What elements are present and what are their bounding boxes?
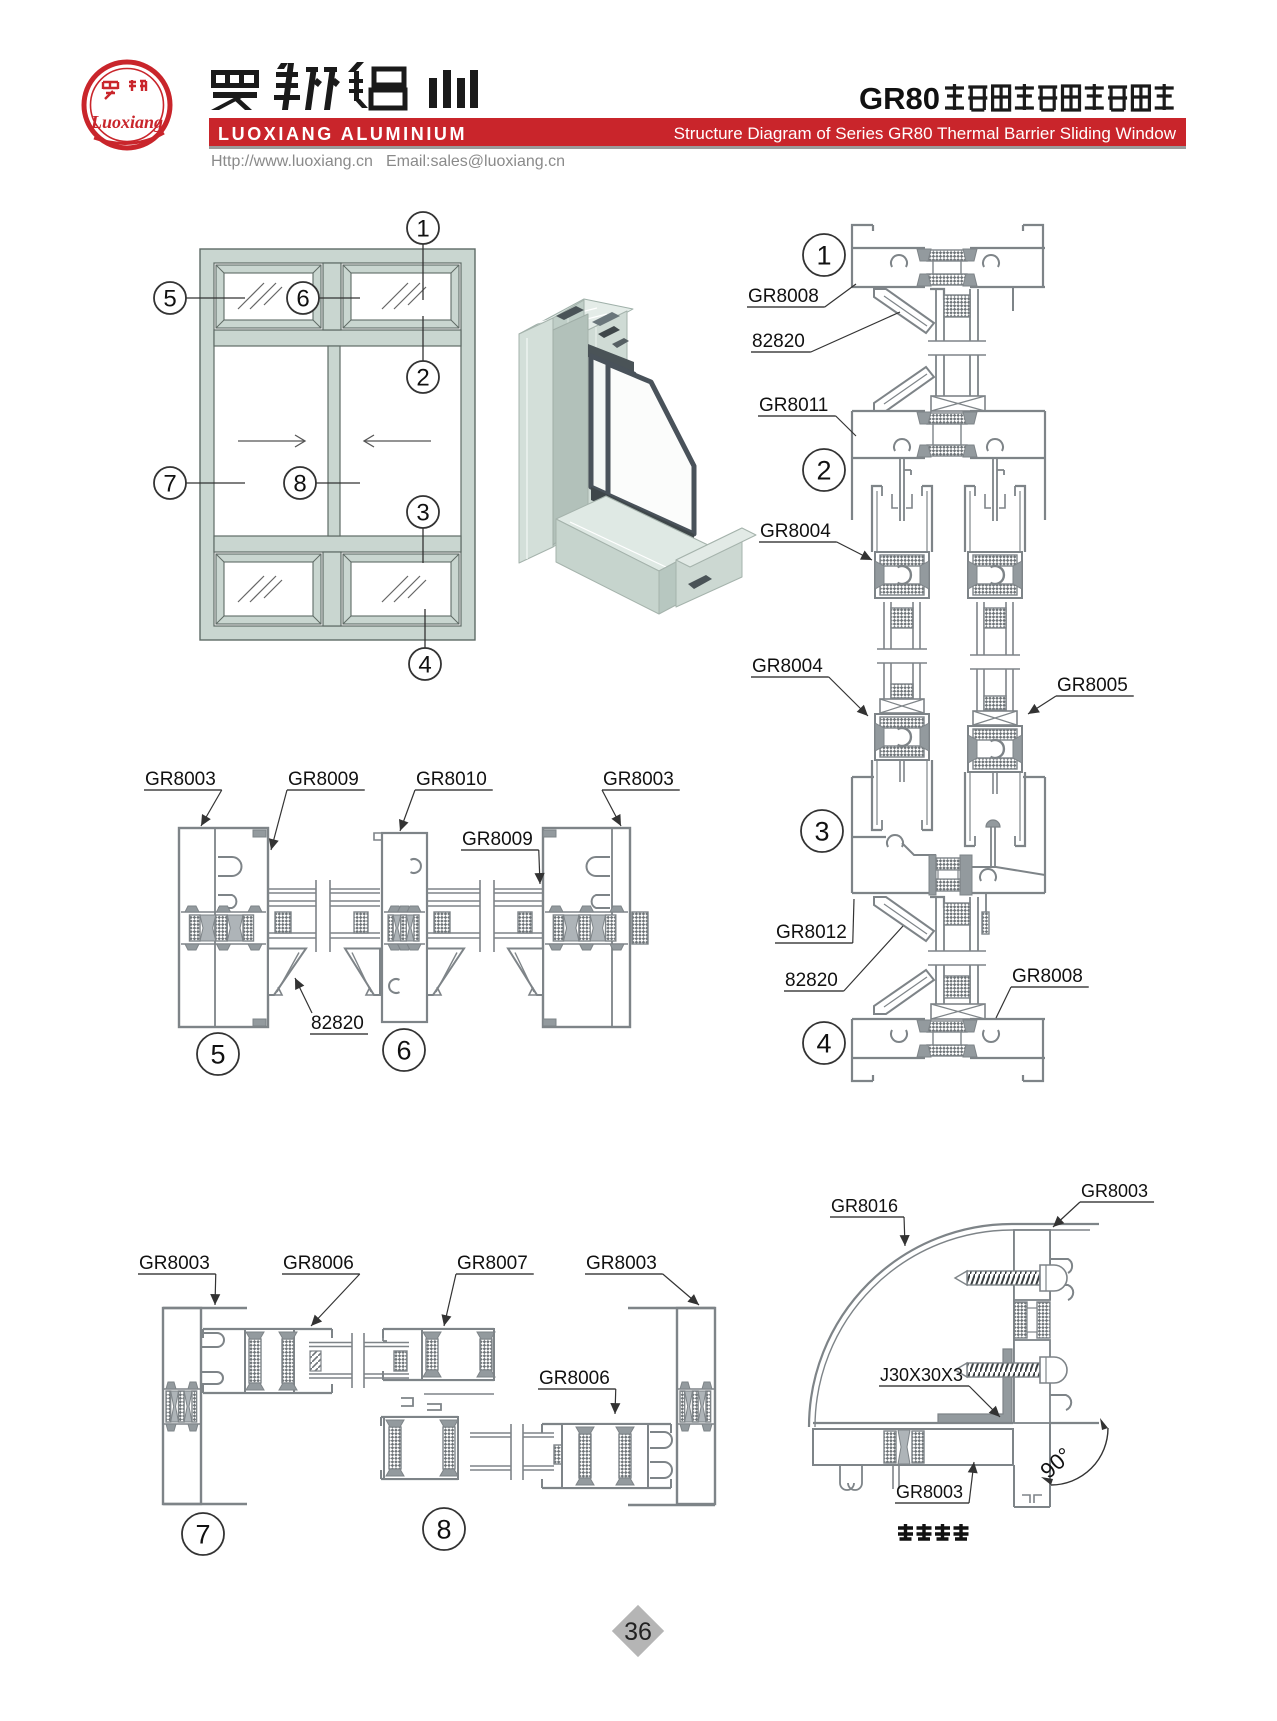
svg-text:2: 2 [816, 456, 831, 486]
svg-text:8: 8 [293, 471, 306, 498]
svg-text:LUOXIANG ALUMINIUM: LUOXIANG ALUMINIUM [218, 124, 467, 144]
svg-text:3: 3 [814, 817, 829, 847]
svg-text:GR8003: GR8003 [586, 1253, 657, 1274]
svg-text:1: 1 [416, 216, 429, 243]
svg-text:Email:sales@luoxiang.cn: Email:sales@luoxiang.cn [386, 153, 565, 170]
svg-text:Http://www.luoxiang.cn: Http://www.luoxiang.cn [211, 153, 373, 170]
svg-text:GR8004: GR8004 [752, 656, 823, 677]
svg-text:GR8007: GR8007 [457, 1253, 528, 1274]
svg-text:5: 5 [163, 286, 176, 313]
svg-text:GR8016: GR8016 [831, 1196, 898, 1216]
svg-text:GR8006: GR8006 [539, 1368, 610, 1389]
svg-text:GR8003: GR8003 [896, 1482, 963, 1502]
svg-text:GR8010: GR8010 [416, 769, 487, 790]
svg-text:4: 4 [418, 652, 431, 679]
svg-text:82820: 82820 [311, 1013, 364, 1034]
svg-text:Structure Diagram of Series GR: Structure Diagram of Series GR80 Thermal… [674, 124, 1177, 143]
svg-text:GR8003: GR8003 [1081, 1181, 1148, 1201]
svg-text:5: 5 [210, 1040, 225, 1070]
svg-text:GR8012: GR8012 [776, 922, 847, 943]
svg-text:GR8003: GR8003 [603, 769, 674, 790]
svg-text:GR8003: GR8003 [139, 1253, 210, 1274]
svg-text:GR8008: GR8008 [748, 286, 819, 307]
svg-text:GR80: GR80 [859, 81, 940, 116]
svg-text:4: 4 [816, 1029, 831, 1059]
svg-text:7: 7 [195, 1520, 210, 1550]
svg-text:GR8008: GR8008 [1012, 966, 1083, 987]
svg-text:GR8009: GR8009 [462, 829, 533, 850]
svg-text:GR8009: GR8009 [288, 769, 359, 790]
svg-text:J30X30X3: J30X30X3 [880, 1365, 963, 1385]
svg-text:GR8011: GR8011 [759, 395, 828, 416]
svg-text:6: 6 [296, 286, 309, 313]
svg-text:8: 8 [436, 1515, 451, 1545]
svg-text:GR8006: GR8006 [283, 1253, 354, 1274]
svg-text:82820: 82820 [752, 331, 805, 352]
svg-text:GR8004: GR8004 [760, 521, 831, 542]
svg-text:6: 6 [396, 1036, 411, 1066]
svg-text:36: 36 [624, 1618, 652, 1646]
svg-text:GR8005: GR8005 [1057, 675, 1128, 696]
svg-text:7: 7 [163, 471, 176, 498]
svg-text:GR8003: GR8003 [145, 769, 216, 790]
svg-text:Luoxiang: Luoxiang [90, 112, 163, 132]
svg-text:82820: 82820 [785, 970, 838, 991]
svg-text:2: 2 [416, 365, 429, 392]
svg-text:1: 1 [816, 241, 831, 271]
svg-text:3: 3 [416, 500, 429, 527]
